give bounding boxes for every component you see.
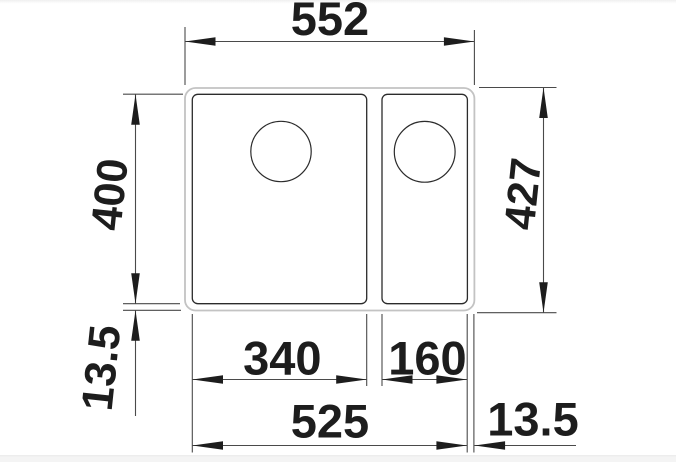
svg-text:13.5: 13.5 — [73, 323, 131, 413]
svg-text:160: 160 — [388, 332, 466, 385]
svg-text:427: 427 — [496, 156, 551, 232]
svg-text:552: 552 — [291, 0, 369, 45]
svg-text:400: 400 — [83, 156, 138, 232]
svg-text:13.5: 13.5 — [487, 393, 578, 446]
svg-text:340: 340 — [243, 332, 321, 385]
svg-text:525: 525 — [291, 395, 369, 448]
